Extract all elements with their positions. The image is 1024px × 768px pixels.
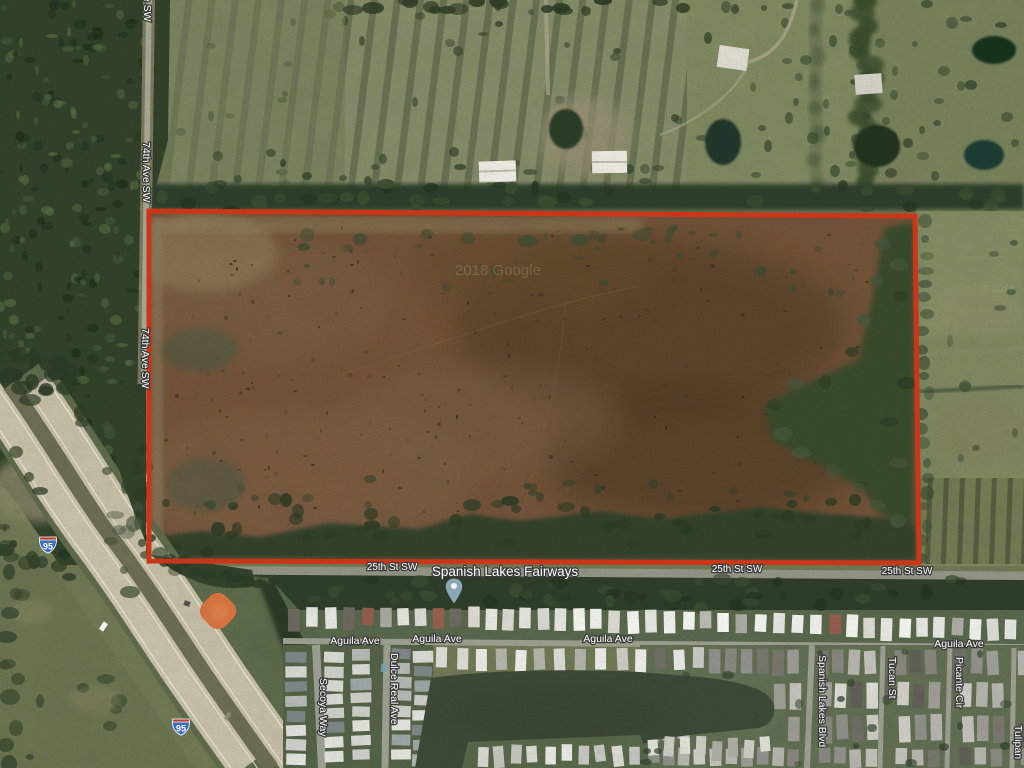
- svg-text:Aguila Ave: Aguila Ave: [412, 633, 462, 645]
- svg-text:74th Ave SW: 74th Ave SW: [140, 142, 152, 203]
- svg-text:25th St SW: 25th St SW: [882, 566, 933, 577]
- svg-text:Tulipan: Tulipan: [1012, 725, 1024, 759]
- svg-text:74th Ave SW: 74th Ave SW: [141, 0, 153, 22]
- svg-text:Aguila Ave: Aguila Ave: [934, 638, 984, 650]
- svg-text:Tucan St: Tucan St: [886, 657, 898, 699]
- svg-text:25th St SW: 25th St SW: [367, 562, 418, 573]
- svg-text:Aguila Ave: Aguila Ave: [583, 633, 633, 645]
- svg-text:© 2018: © 2018: [982, 284, 1015, 295]
- svg-text:Aguila Ave: Aguila Ave: [330, 635, 380, 647]
- svg-text:95: 95: [176, 724, 186, 734]
- svg-text:74th Ave SW: 74th Ave SW: [139, 328, 151, 389]
- svg-text:Spanish Lakes Blvd: Spanish Lakes Blvd: [816, 655, 828, 747]
- svg-text:Dulce Real Ave: Dulce Real Ave: [388, 653, 400, 725]
- svg-text:2018 Google: 2018 Google: [455, 262, 541, 279]
- svg-text:Secoya Way: Secoya Way: [317, 678, 329, 737]
- svg-text:95: 95: [43, 542, 53, 552]
- svg-text:25th St SW: 25th St SW: [712, 564, 763, 575]
- svg-text:Spanish Lakes Fairways: Spanish Lakes Fairways: [432, 564, 579, 579]
- svg-text:Picante Cir: Picante Cir: [953, 657, 965, 709]
